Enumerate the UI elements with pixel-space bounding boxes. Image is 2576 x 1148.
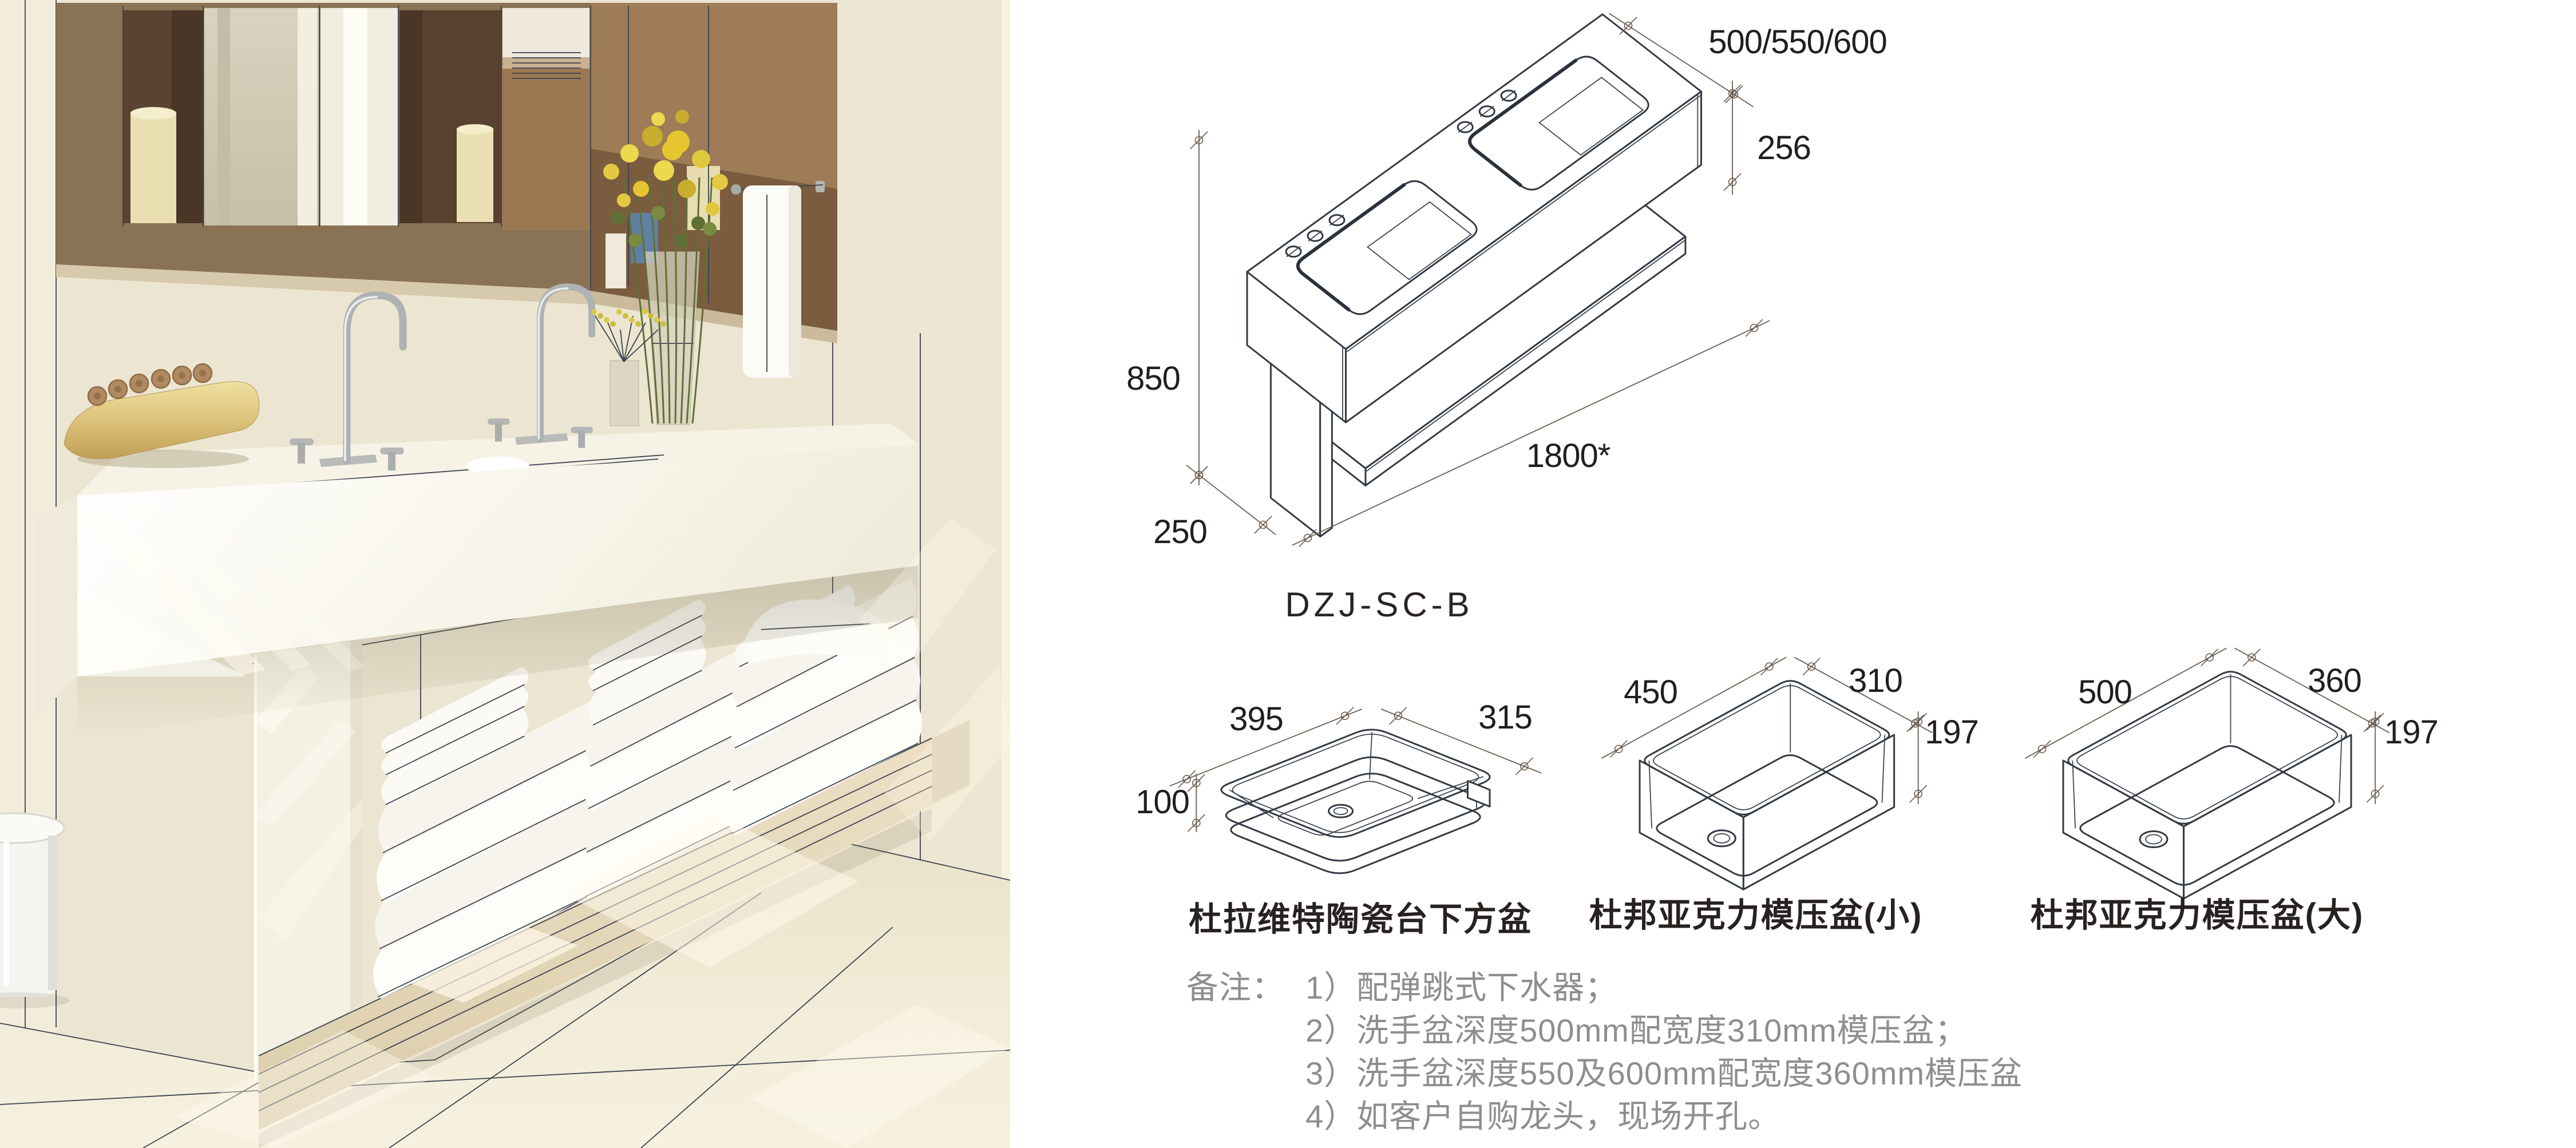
drawing-panel: 500/550/600 256 850 250 1800* DZJ-SC-B 3… [1010, 0, 2576, 1148]
basin-drawing-undercounter [1221, 730, 1490, 873]
note-line: 4）如客户自购龙头，现场开孔。 [1305, 1098, 1780, 1134]
basinC-width-label: 500 [2078, 674, 2132, 711]
dim-total-height-label: 850 [1126, 360, 1180, 397]
dim-depth-label: 500/550/600 [1708, 23, 1887, 61]
basinB-width-label: 450 [1624, 674, 1677, 711]
bathroom-photo-svg [0, 0, 1010, 1148]
catalog-page: 500/550/600 256 850 250 1800* DZJ-SC-B 3… [0, 0, 2576, 1148]
basinB-depth-label: 310 [1849, 662, 1902, 699]
model-label: DZJ-SC-B [1285, 585, 1473, 624]
basinA-caption: 杜拉维特陶瓷台下方盆 [1189, 901, 1532, 938]
note-line: 2）洗手盆深度500mm配宽度310mm模压盆； [1305, 1012, 1968, 1048]
basinC-depth-label: 360 [2308, 662, 2361, 699]
note-line: 3）洗手盆深度550及600mm配宽度360mm模压盆 [1305, 1055, 2023, 1091]
basinB-height-label: 197 [1925, 714, 1979, 751]
dim-length-label: 1800* [1526, 437, 1611, 474]
basinC-caption: 杜邦亚克力模压盆(大) [2031, 897, 2364, 934]
basinC-height-label: 197 [2384, 714, 2438, 751]
basinA-height-label: 100 [1135, 783, 1189, 821]
note-line: 1）配弹跳式下水器； [1305, 969, 1617, 1006]
basinA-width-label: 395 [1229, 700, 1283, 738]
notes-label: 备注： [1186, 969, 1284, 1006]
basinA-depth-label: 315 [1478, 699, 1532, 736]
dim-counter-height-label: 256 [1757, 129, 1811, 167]
basinB-caption: 杜邦亚克力模压盆(小) [1589, 897, 1923, 934]
dim-leg-depth-label: 250 [1153, 513, 1207, 551]
bathroom-photo [0, 0, 1010, 1148]
drawing-svg: 500/550/600 256 850 250 1800* DZJ-SC-B 3… [1010, 0, 2576, 1148]
notes-block: 备注： 1）配弹跳式下水器； 2）洗手盆深度500mm配宽度310mm模压盆； … [1186, 969, 2023, 1134]
